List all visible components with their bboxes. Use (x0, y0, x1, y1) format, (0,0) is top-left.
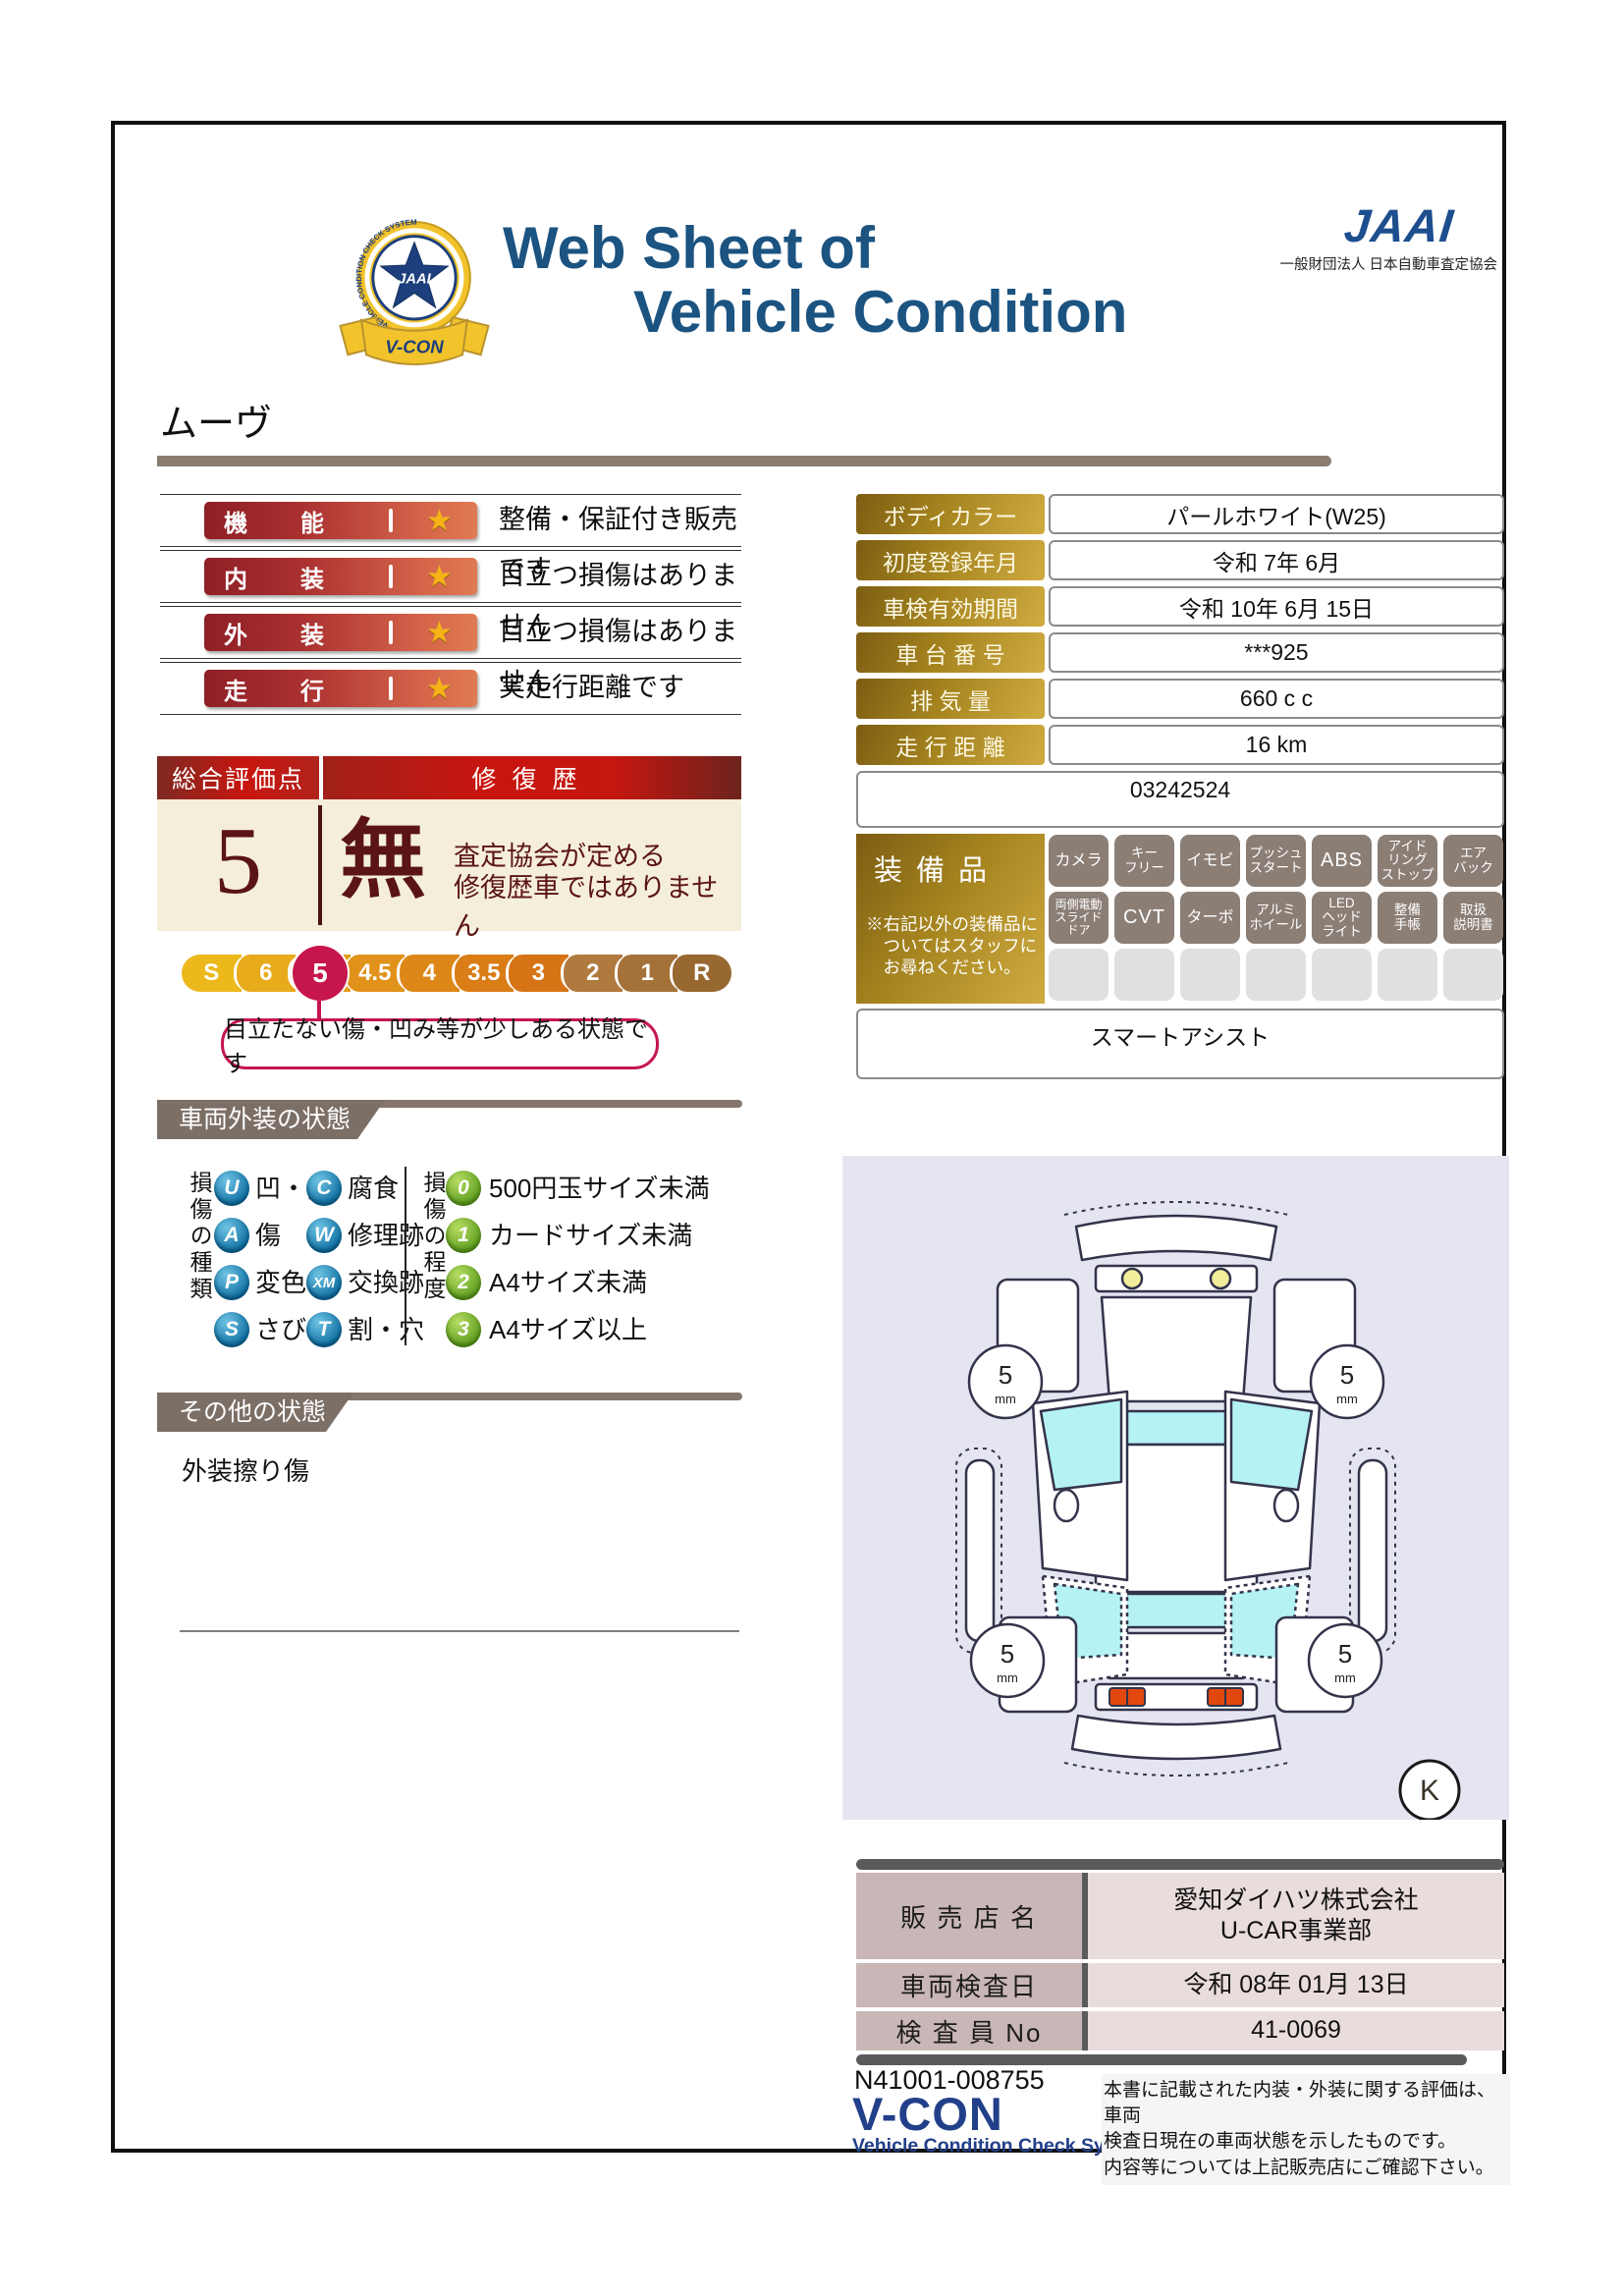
info-value: 16 km (1049, 725, 1504, 765)
dealer-label: 検 査 員 No (856, 2011, 1082, 2050)
damage-degree-code-2: 2 (446, 1265, 481, 1300)
star-icon: ★ (426, 504, 453, 538)
overall-score-value: 5 (157, 807, 319, 915)
damage-type-code-S: S (214, 1312, 249, 1347)
other-section-header: その他の状態 (157, 1393, 742, 1432)
rating-desc: 実走行距離です (499, 663, 684, 713)
star-icon: ★ (426, 672, 453, 706)
rating-desc: 目立つ損傷はありません (499, 607, 741, 657)
rating-label: 機能 (204, 504, 389, 538)
scale-seg-4_5: 4.5 (343, 955, 406, 992)
damage-type-label-S: さび (255, 1312, 306, 1347)
equipment-badge-empty (1443, 949, 1503, 1001)
damage-type-code-C: C (306, 1171, 342, 1206)
repair-note-line2: 修復歴車ではありません (454, 866, 741, 943)
overall-score-header: 総合評価点 修復歴 (157, 756, 741, 799)
body-separator (318, 805, 322, 925)
badge-divider (389, 621, 393, 644)
dealer-value: 愛知ダイハツ株式会社 U-CAR事業部 (1088, 1873, 1504, 1959)
dealer-value: 41-0069 (1088, 2011, 1504, 2050)
info-label: 初度登録年月 (856, 540, 1045, 580)
vehicle-name: ムーヴ (160, 393, 272, 447)
equipment-badge-power-slide-doors: 両側電動 スライド ドア (1049, 892, 1109, 944)
right-front-window (1231, 1399, 1312, 1490)
score-scale-bar: S 6 4.5 4 3.5 3 2 1 R (182, 955, 731, 992)
headlight-bar (1096, 1266, 1257, 1291)
damage-degree-code-1: 1 (446, 1218, 481, 1253)
other-condition-note: 外装擦り傷 (182, 1451, 309, 1488)
info-row-body-color: ボディカラー パールホワイト(W25) (856, 494, 1504, 534)
info-value: パールホワイト(W25) (1049, 494, 1504, 534)
equipment-badge-idling-stop: アイド リング ストップ (1378, 835, 1437, 887)
equipment-badge-owners-manual: 取扱 説明書 (1443, 892, 1503, 944)
score-description-callout: 目立たない傷・凹み等が少しある状態です (221, 1018, 659, 1069)
equipment-badge-push-start: プッシュ スタート (1246, 835, 1306, 887)
dealer-label: 販 売 店 名 (856, 1873, 1082, 1959)
damage-degree-label-3: A4サイズ以上 (489, 1312, 647, 1347)
tread-value: 5 (1338, 1639, 1352, 1668)
tread-unit: mm (997, 1670, 1018, 1685)
overall-score-header-label: 総合評価点 (157, 756, 319, 799)
scale-seg-3_5: 3.5 (452, 955, 514, 992)
dealer-row-inspection-date: 車両検査日 令和 08年 01月 13日 (856, 1963, 1504, 2007)
rating-badge-interior: 内装 ★ (204, 558, 477, 595)
left-headlight (1122, 1269, 1142, 1288)
info-label: 走 行 距 離 (856, 725, 1045, 765)
exterior-section-header: 車両外装の状態 (157, 1100, 742, 1139)
scale-seg-3: 3 (506, 955, 568, 992)
equipment-panel: 装備品 ※右記以外の装備品に ついてはスタッフに お尋ねください。 (856, 834, 1045, 1004)
damage-type-label-C: 腐食 (348, 1171, 399, 1206)
star-icon: ★ (426, 616, 453, 650)
equipment-badge-keyfree: キー フリー (1114, 835, 1174, 887)
equipment-badge-alloy-wheels: アルミ ホイール (1246, 892, 1306, 944)
reference-number: 03242524 (856, 771, 1504, 828)
repair-history-header-label: 修復歴 (323, 756, 741, 799)
info-row-first-registration: 初度登録年月 令和 7年 6月 (856, 540, 1504, 580)
equipment-badge-empty (1114, 949, 1174, 1001)
front-bumper-dashed-outline (1064, 1202, 1288, 1215)
damage-type-code-U: U (214, 1171, 249, 1206)
disclaimer-text: 本書に記載された内装・外装に関する評価は、車両 検査日現在の車両状態を示したもの… (1102, 2074, 1510, 2185)
scale-seg-2: 2 (561, 955, 623, 992)
rating-row-exterior: 外装 ★ 目立つ損傷はありません (160, 606, 741, 659)
rating-desc: 目立つ損傷はありません (499, 551, 741, 601)
info-label: 車検有効期間 (856, 586, 1045, 627)
tread-value: 5 (999, 1360, 1012, 1390)
info-row-mileage: 走 行 距 離 16 km (856, 725, 1504, 765)
damage-degree-code-0: 0 (446, 1171, 481, 1206)
info-row-chassis-number: 車 台 番 号 ***925 (856, 632, 1504, 673)
equipment-badge-led-headlights: LED ヘッド ライト (1312, 892, 1372, 944)
info-value: ***925 (1049, 632, 1504, 673)
badge-divider (389, 509, 393, 532)
car-exploded-view: 5 mm 5 mm 5 mm 5 mm K (842, 1156, 1509, 1820)
badge-divider (389, 565, 393, 588)
right-door-mirror (1274, 1490, 1298, 1521)
damage-degree-label-0: 500円玉サイズ未満 (489, 1171, 710, 1206)
equipment-badge-turbo: ターボ (1180, 892, 1240, 944)
rating-row-mileage: 走行 ★ 実走行距離です (160, 662, 741, 715)
damage-type-label-XM: 交換跡 (348, 1265, 424, 1300)
front-bumper (1076, 1216, 1276, 1260)
equipment-badge-cvt: CVT (1114, 892, 1174, 944)
damage-degree-code-3: 3 (446, 1312, 481, 1347)
equipment-badge-immobilizer: イモビ (1180, 835, 1240, 887)
header-divider-bar (157, 456, 1331, 466)
dealer-table-top-bar (856, 1859, 1504, 1870)
rating-label: 内装 (204, 560, 389, 594)
rating-row-function: 機能 ★ 整備・保証付き販売です (160, 494, 741, 547)
notes-underline (180, 1630, 739, 1632)
damage-type-label-P: 変色 (255, 1265, 306, 1300)
equipment-badge-empty (1246, 949, 1306, 1001)
damage-type-label-T: 割・穴 (348, 1312, 424, 1347)
rear-bumper-dashed-outline (1064, 1763, 1288, 1776)
scale-seg-4: 4 (397, 955, 460, 992)
damage-type-code-T: T (306, 1312, 342, 1347)
jaai-wordmark: JAAI (1303, 198, 1495, 252)
equipment-badge-airbag: エア バック (1443, 835, 1503, 887)
info-label: 排 気 量 (856, 679, 1045, 719)
tread-value: 5 (1340, 1360, 1354, 1390)
equipment-grid: カメラ キー フリー イモビ プッシュ スタート ABS アイド リング ストッ… (1049, 835, 1506, 1001)
rear-bumper (1072, 1716, 1280, 1759)
legend-divider (405, 1167, 406, 1345)
damage-type-label-W: 修理跡 (348, 1218, 424, 1253)
rating-row-interior: 内装 ★ 目立つ損傷はありません (160, 550, 741, 603)
damage-type-code-A: A (214, 1218, 249, 1253)
damage-type-code-P: P (214, 1265, 249, 1300)
dealer-value: 令和 08年 01月 13日 (1088, 1963, 1504, 2007)
selected-score-marker: 5 (293, 946, 348, 1001)
equipment-badge-abs: ABS (1312, 835, 1372, 887)
repair-history-flag: 無 (340, 805, 426, 919)
equipment-badge-empty (1312, 949, 1372, 1001)
left-front-window (1041, 1399, 1121, 1490)
equipment-badge-service-book: 整備 手帳 (1378, 892, 1437, 944)
emblem-star-text: JAAI (398, 272, 431, 288)
info-value: 660 c c (1049, 679, 1504, 719)
scale-seg-S: S (182, 955, 242, 992)
equipment-badge-empty (1180, 949, 1240, 1001)
tread-unit: mm (1336, 1392, 1358, 1406)
equipment-extra-smart-assist: スマートアシスト (856, 1009, 1504, 1079)
right-sill-panel (1359, 1460, 1386, 1641)
badge-divider (389, 677, 393, 700)
damage-degree-label-2: A4サイズ未満 (489, 1265, 647, 1300)
dealer-row-shop-name: 販 売 店 名 愛知ダイハツ株式会社 U-CAR事業部 (856, 1873, 1504, 1959)
dealer-table-bottom-bar (856, 2054, 1467, 2065)
emblem-ribbon-text: V-CON (385, 336, 444, 356)
damage-degree-axis-label: 損傷の程度 (416, 1171, 450, 1338)
damage-type-code-XM: XM (306, 1265, 342, 1300)
exterior-section-title: 車両外装の状態 (157, 1100, 385, 1139)
dealer-row-inspector-no: 検 査 員 No 41-0069 (856, 2011, 1504, 2050)
overall-score-body: 5 無 査定協会が定める 修復歴車ではありません (157, 799, 741, 931)
left-door-mirror (1055, 1490, 1078, 1521)
jaai-organization-name: 一般財団法人 日本自動車査定協会 (1217, 253, 1497, 274)
damage-type-axis-label: 損傷の種類 (183, 1171, 216, 1338)
scale-seg-1: 1 (615, 955, 677, 992)
rating-badge-function: 機能 ★ (204, 502, 477, 539)
equipment-title: 装備品 (874, 847, 1045, 889)
right-headlight (1211, 1269, 1230, 1288)
vcon-emblem-logo: JAAI VEHICLE CONDITION CHECK SYSTEM V-CO… (322, 218, 507, 367)
equipment-badge-empty (1378, 949, 1437, 1001)
tread-unit: mm (1334, 1670, 1356, 1685)
rating-label: 走行 (204, 672, 389, 706)
scale-seg-R: R (670, 955, 732, 992)
other-section-title: その他の状態 (157, 1393, 353, 1432)
info-label: 車 台 番 号 (856, 632, 1045, 673)
info-row-inspection-valid: 車検有効期間 令和 10年 6月 15日 (856, 586, 1504, 627)
damage-type-code-W: W (306, 1218, 342, 1253)
car-damage-diagram: 5 mm 5 mm 5 mm 5 mm K (842, 1156, 1509, 1820)
overall-score-panel: 総合評価点 修復歴 5 無 査定協会が定める 修復歴車ではありません (157, 756, 741, 931)
tread-unit: mm (995, 1392, 1016, 1406)
equipment-note: ※右記以外の装備品に ついてはスタッフに お尋ねください。 (866, 914, 1045, 979)
rating-label: 外装 (204, 616, 389, 650)
sheet-title-line1: Web Sheet of (503, 214, 875, 282)
star-icon: ★ (426, 560, 453, 594)
dealer-label: 車両検査日 (856, 1963, 1082, 2007)
vcon-brand-logo: V-CON (852, 2087, 1003, 2141)
info-value: 令和 7年 6月 (1049, 540, 1504, 580)
damage-type-label-A: 傷 (255, 1218, 281, 1253)
left-sill-panel (966, 1460, 994, 1641)
inspector-k-mark: K (1420, 1775, 1439, 1807)
rating-desc: 整備・保証付き販売です (499, 495, 741, 545)
info-row-displacement: 排 気 量 660 c c (856, 679, 1504, 719)
info-value: 令和 10年 6月 15日 (1049, 586, 1504, 627)
equipment-badge-camera: カメラ (1049, 835, 1109, 887)
hood-panel (1102, 1297, 1251, 1401)
sheet-title-line2: Vehicle Condition (633, 278, 1127, 346)
rating-badge-exterior: 外装 ★ (204, 614, 477, 651)
scale-seg-6: 6 (234, 955, 297, 992)
tread-value: 5 (1001, 1639, 1014, 1668)
equipment-badge-empty (1049, 949, 1109, 1001)
info-label: ボディカラー (856, 494, 1045, 534)
rating-badge-mileage: 走行 ★ (204, 670, 477, 707)
damage-degree-label-1: カードサイズ未満 (489, 1218, 692, 1253)
